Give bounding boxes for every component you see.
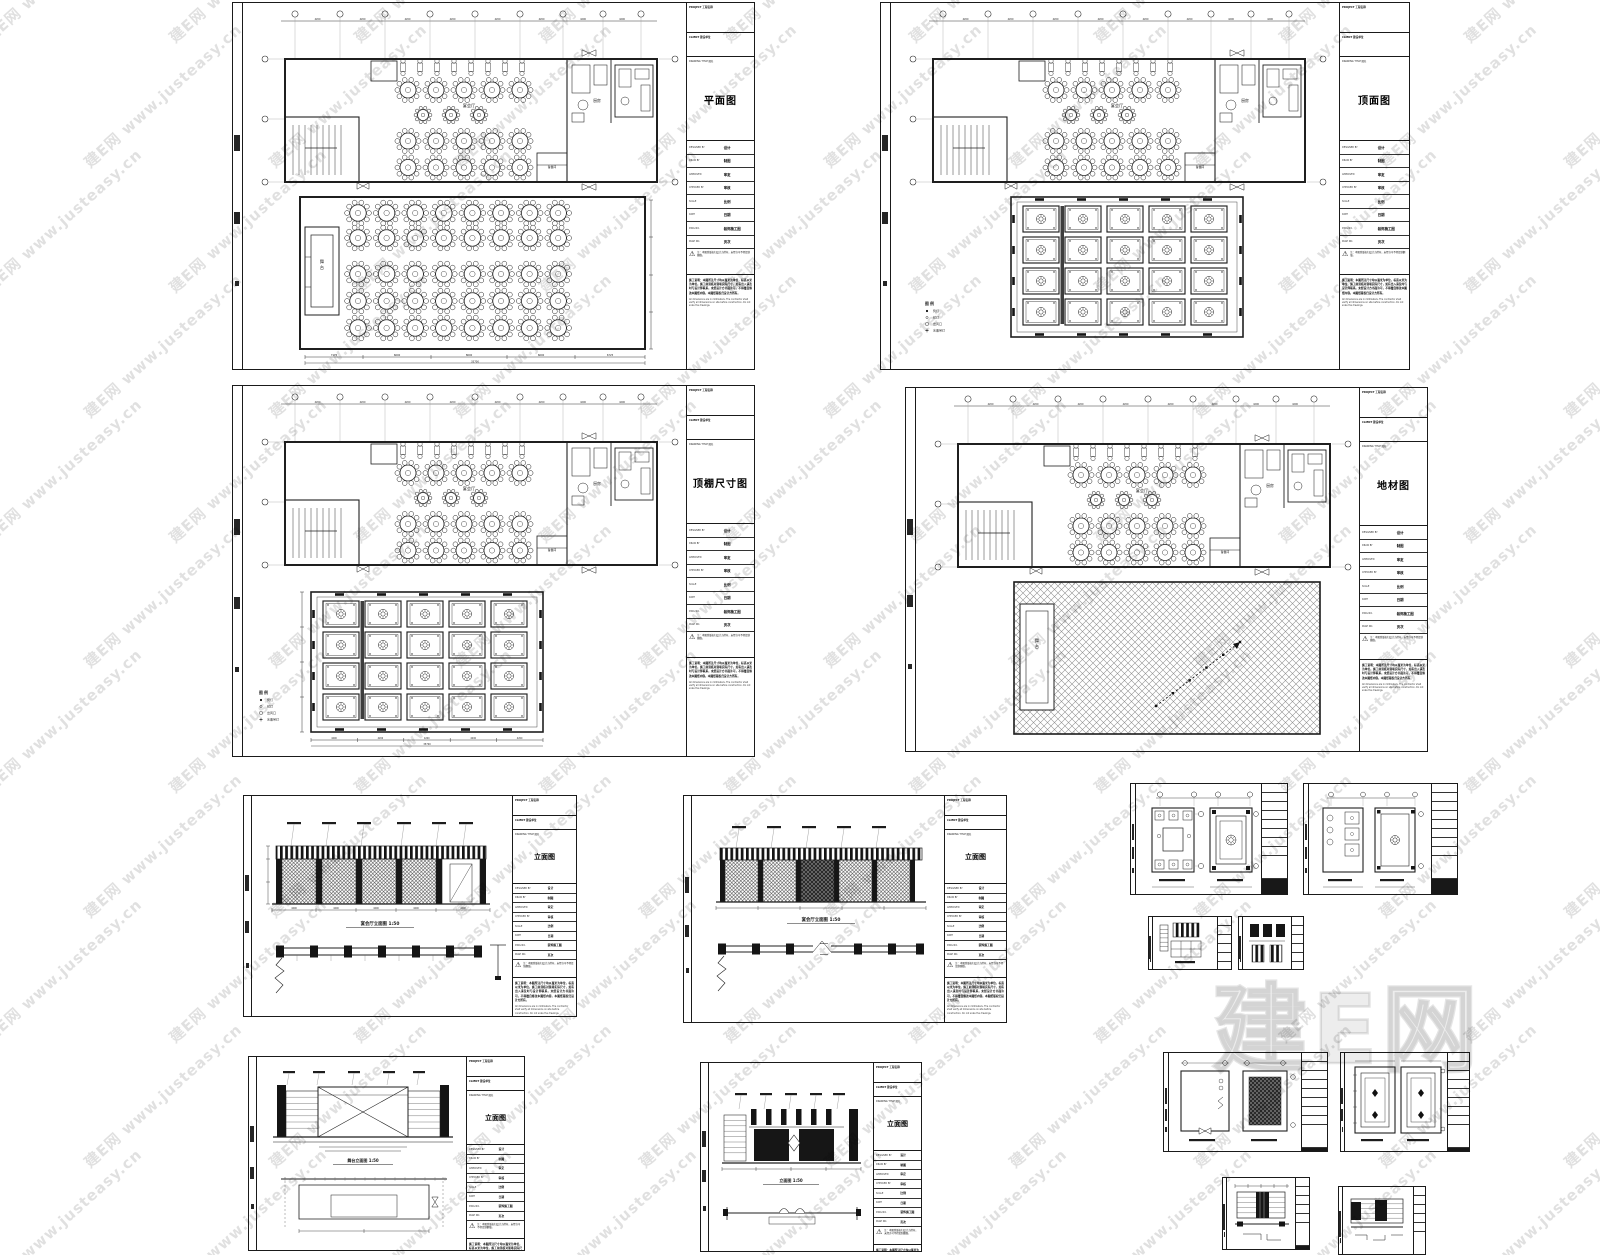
- svg-text:4200: 4200: [413, 907, 419, 910]
- titleblock-client: CLIENT 建设单位: [467, 1077, 524, 1091]
- titleblock-notes-block: [1262, 879, 1287, 894]
- titleblock-row: [1296, 1223, 1309, 1246]
- watermark-tile: 建E网 www.justeasy.cn: [1459, 644, 1600, 797]
- watermark-tile: 建E网 www.justeasy.cn: [0, 394, 146, 547]
- titleblock-field: DWG NO.装饰施工图: [945, 941, 1006, 951]
- sheet-floor-plan: 42004200420042004200420042004200宴会厅厨房备餐间…: [232, 2, 755, 370]
- svg-text:台: 台: [320, 264, 324, 271]
- titleblock-field: DATE日期: [513, 932, 576, 942]
- warning-triangle-icon: ⚠: [947, 962, 953, 969]
- title-block: PROJECT 工程名称CLIENT 建设单位DRAWING TITLE 图名立…: [944, 796, 1006, 1022]
- svg-text:4200: 4200: [424, 737, 430, 740]
- svg-text:4200: 4200: [1292, 403, 1298, 406]
- titleblock-row: [1292, 944, 1303, 953]
- svg-text:4200: 4200: [1098, 18, 1104, 21]
- titleblock-row: [1432, 793, 1457, 802]
- svg-text:4200: 4200: [315, 18, 321, 21]
- svg-text:4200: 4200: [495, 401, 501, 404]
- titleblock-field: DATE日期: [945, 932, 1006, 942]
- titleblock-field: DESIGNED BY设计: [513, 884, 576, 894]
- svg-text:35700: 35700: [423, 743, 431, 746]
- titleblock-row: [1414, 1232, 1425, 1254]
- titleblock-row: [1292, 926, 1303, 935]
- titleblock-row: [1302, 1098, 1327, 1107]
- sheet-title: 立面图: [467, 1113, 524, 1123]
- svg-text:4200: 4200: [963, 18, 969, 21]
- sheet-elevation-a: 42004200420042004200宴会厅立面图 1:50PROJECT 工…: [243, 795, 577, 1017]
- sheet-drawing-area: 舞台立面图 1:50: [257, 1057, 466, 1250]
- titleblock-warning: ⚠注：本图纸版权归设计方所有，未经许可不得复制翻版。: [513, 960, 576, 978]
- titleblock-field: DWG NO.装饰施工图: [513, 941, 576, 951]
- warning-triangle-icon: ⚠: [469, 1223, 475, 1230]
- sheet-binding-strip: [881, 3, 891, 369]
- svg-text:4200: 4200: [1143, 18, 1149, 21]
- sheet-f-drawing: 宴会厅立面图 1:50: [694, 798, 942, 1020]
- titleblock-fields: DESIGNED BY设计DRAW BY制图APPROVED审定CHECKED …: [874, 1151, 921, 1227]
- sheet-drawing-area: 42004200420042004200宴会厅立面图 1:50: [252, 796, 512, 1016]
- titleblock-row: [1302, 1080, 1327, 1089]
- titleblock-project: PROJECT 工程名称: [687, 386, 754, 416]
- svg-text:宴会厅: 宴会厅: [463, 485, 476, 492]
- watermark-tile: 建E网 www.justeasy.cn: [904, 1144, 1071, 1255]
- titleblock-client: CLIENT 建设单位: [513, 816, 576, 830]
- title-block: PROJECT 工程名称CLIENT 建设单位DRAWING TITLE 图名平…: [686, 3, 754, 369]
- titleblock-project: PROJECT 工程名称: [467, 1057, 524, 1077]
- titleblock-project: PROJECT 工程名称: [1340, 3, 1409, 33]
- sheet-detail-washroom-1: [1130, 783, 1288, 895]
- titleblock-field: APPROVED审定: [1340, 168, 1409, 182]
- sheet-binding-strip: [233, 3, 243, 369]
- titleblock-warning: ⚠注：本图纸版权归设计方所有，未经许可不得复制翻版。: [1340, 249, 1409, 275]
- titleblock-field: APPROVED审定: [874, 1170, 921, 1180]
- svg-text:射灯: 射灯: [267, 704, 273, 709]
- svg-text:6600: 6600: [538, 353, 545, 357]
- titleblock-field: DRAW BY制图: [945, 894, 1006, 904]
- sheet-detail-washroom-2: [1303, 783, 1458, 895]
- titleblock-field: APPROVED审定: [945, 903, 1006, 913]
- titleblock-project: PROJECT 工程名称: [687, 3, 754, 33]
- title-block: PROJECT 工程名称CLIENT 建设单位DRAWING TITLE 图名顶…: [1339, 3, 1409, 369]
- sheet-detail-entry-2: [1340, 1052, 1470, 1152]
- titleblock-row: [1448, 1107, 1469, 1116]
- titleblock-row: [1218, 944, 1231, 953]
- svg-text:台: 台: [1035, 643, 1039, 650]
- titleblock-notes: 施工说明：本图所注尺寸均以毫米为单位，标高以米为单位。施工前须核对现场实际尺寸，…: [687, 275, 754, 369]
- sheet-drawing-area: [1136, 784, 1261, 894]
- watermark-tile: 建E网 www.justeasy.cn: [1559, 519, 1600, 672]
- sheet-m-drawing: [1229, 1180, 1293, 1247]
- svg-text:4200: 4200: [580, 401, 586, 404]
- titleblock-field: CHECKED BY审核: [1360, 567, 1427, 581]
- titleblock-project: PROJECT 工程名称: [513, 796, 576, 816]
- sheet-drawing-area: 42004200420042004200420042004200宴会厅厨房备餐间…: [243, 386, 686, 756]
- sheet-detail-4: [1338, 1186, 1426, 1255]
- svg-text:4200: 4200: [619, 401, 625, 404]
- sheet-elevation-stage: 舞台立面图 1:50PROJECT 工程名称CLIENT 建设单位DRAWING…: [248, 1056, 525, 1251]
- svg-text:4200: 4200: [333, 907, 339, 910]
- titleblock-warning: ⚠注：本图纸版权归设计方所有，未经许可不得复制翻版。: [687, 249, 754, 275]
- watermark-tile: 建E网 www.justeasy.cn: [79, 269, 246, 422]
- titleblock-warning: ⚠注：本图纸版权归设计方所有，未经许可不得复制翻版。: [1360, 634, 1427, 660]
- titleblock-title: DRAWING TITLE 图名顶棚尺寸图: [687, 440, 754, 524]
- titleblock-field: PAGE NO.页次: [513, 951, 576, 961]
- svg-text:舞: 舞: [1035, 637, 1039, 644]
- watermark-tile: 建E网 www.justeasy.cn: [0, 144, 146, 297]
- svg-text:备餐间: 备餐间: [548, 165, 557, 169]
- sheet-i-drawing: [1155, 919, 1215, 967]
- titleblock-project: PROJECT 工程名称: [945, 796, 1006, 816]
- sheet-title: 立面图: [513, 852, 576, 862]
- svg-text:4200: 4200: [291, 907, 297, 910]
- svg-text:4200: 4200: [539, 18, 545, 21]
- svg-text:4200: 4200: [378, 737, 384, 740]
- svg-text:水晶吊灯: 水晶吊灯: [933, 328, 945, 333]
- sheet-a-drawing: 42004200420042004200420042004200宴会厅厨房备餐间…: [245, 5, 684, 367]
- titleblock-field: DWG NO.装饰施工图: [687, 605, 754, 619]
- titleblock-fields: DESIGNED BY设计DRAW BY制图APPROVED审定CHECKED …: [467, 1145, 524, 1221]
- sheet-title: 地材图: [1360, 477, 1427, 492]
- titleblock-row: [1296, 1178, 1309, 1187]
- svg-text:4200: 4200: [1168, 403, 1174, 406]
- svg-text:宴会厅: 宴会厅: [1111, 102, 1124, 109]
- titleblock-row: [1218, 917, 1231, 926]
- titleblock-notes-block: [1302, 1148, 1327, 1151]
- title-block: [1431, 784, 1457, 894]
- titleblock-client: CLIENT 建设单位: [1340, 33, 1409, 57]
- svg-text:筒灯: 筒灯: [267, 697, 273, 702]
- titleblock-field: DRAW BY制图: [1340, 155, 1409, 169]
- titleblock-row: [1262, 856, 1287, 879]
- svg-text:4200: 4200: [1078, 403, 1084, 406]
- svg-text:4200: 4200: [470, 737, 476, 740]
- titleblock-field: DATE日期: [1340, 209, 1409, 223]
- svg-text:4200: 4200: [450, 401, 456, 404]
- titleblock-row: [1218, 926, 1231, 935]
- svg-text:4200: 4200: [1228, 18, 1234, 21]
- title-block: PROJECT 工程名称CLIENT 建设单位DRAWING TITLE 图名立…: [466, 1057, 524, 1250]
- titleblock-row: [1262, 820, 1287, 829]
- sheet-binding-strip: [906, 388, 916, 751]
- sheet-drawing-area: [1153, 917, 1217, 969]
- warning-triangle-icon: ⚠: [1342, 251, 1348, 258]
- sheet-detail-2: [1238, 916, 1304, 970]
- titleblock-field: APPROVED审定: [687, 551, 754, 565]
- titleblock-row: [1296, 1214, 1309, 1223]
- svg-text:4200: 4200: [405, 18, 411, 21]
- svg-text:水晶吊灯: 水晶吊灯: [267, 717, 279, 722]
- titleblock-notes: 施工说明：本图所注尺寸均以毫米为单位，标高以米为单位。施工前须核对现场实际尺寸，…: [687, 658, 754, 756]
- svg-text:4200: 4200: [1053, 18, 1059, 21]
- title-block: [1217, 917, 1231, 969]
- warning-triangle-icon: ⚠: [1362, 636, 1368, 643]
- svg-text:出风口: 出风口: [933, 321, 942, 326]
- titleblock-field: DESIGNED BY设计: [945, 884, 1006, 894]
- watermark-tile: 建E网 www.justeasy.cn: [0, 644, 146, 797]
- titleblock-notes: 施工说明：本图所注尺寸均以毫米为单位，标高以米为单位。施工前须核对现场实际尺寸，…: [874, 1245, 921, 1251]
- sheet-elevation-c: 立面图 1:50PROJECT 工程名称CLIENT 建设单位DRAWING T…: [700, 1062, 922, 1252]
- titleblock-notes: 施工说明：本图所注尺寸均以毫米为单位，标高以米为单位。施工前须核对现场实际尺寸，…: [1340, 275, 1409, 369]
- titleblock-field: DESIGNED BY设计: [467, 1145, 524, 1155]
- title-block: [1261, 784, 1287, 894]
- svg-text:4200: 4200: [1212, 403, 1218, 406]
- titleblock-field: APPROVED审定: [687, 168, 754, 182]
- sheet-binding-strip: [233, 386, 243, 756]
- titleblock-row: [1432, 802, 1457, 811]
- titleblock-title: DRAWING TITLE 图名立面图: [874, 1097, 921, 1151]
- title-block: [1295, 1178, 1309, 1249]
- titleblock-field: DWG NO.装饰施工图: [1360, 607, 1427, 621]
- titleblock-title: DRAWING TITLE 图名顶面图: [1340, 57, 1409, 141]
- titleblock-notes: 施工说明：本图所注尺寸均以毫米为单位，标高以米为单位。施工前须核对现场实际尺寸，…: [1360, 660, 1427, 751]
- titleblock-project: PROJECT 工程名称: [874, 1063, 921, 1083]
- titleblock-row: [1302, 1053, 1327, 1062]
- titleblock-warning: ⚠注：本图纸版权归设计方所有，未经许可不得复制翻版。: [687, 632, 754, 658]
- watermark-tile: 建E网 www.justeasy.cn: [1459, 1144, 1600, 1255]
- sheet-detail-1: [1148, 916, 1232, 970]
- sheet-l-drawing: [1347, 1055, 1445, 1149]
- titleblock-row: [1432, 811, 1457, 820]
- sheet-binding-strip: [684, 796, 692, 1022]
- titleblock-row: [1448, 1125, 1469, 1148]
- titleblock-row: [1262, 793, 1287, 802]
- watermark-tile: 建E网 www.justeasy.cn: [1459, 394, 1600, 547]
- title-block: [1413, 1187, 1425, 1254]
- svg-text:4200: 4200: [373, 907, 379, 910]
- svg-text:4200: 4200: [1008, 18, 1014, 21]
- svg-text:4200: 4200: [517, 737, 523, 740]
- titleblock-warning: ⚠注：本图纸版权归设计方所有，未经许可不得复制翻版。: [874, 1227, 921, 1245]
- titleblock-field: DRAW BY制图: [687, 538, 754, 552]
- titleblock-field: DESIGNED BY设计: [687, 141, 754, 155]
- title-block: [1291, 917, 1303, 969]
- sheet-k-drawing: [1171, 1055, 1299, 1149]
- sheet-drawing-area: [1343, 1187, 1413, 1254]
- titleblock-row: [1414, 1223, 1425, 1232]
- svg-text:舞台立面图 1:50: 舞台立面图 1:50: [347, 1157, 379, 1163]
- titleblock-row: [1432, 829, 1457, 838]
- titleblock-field: DESIGNED BY设计: [1360, 526, 1427, 540]
- titleblock-row: [1414, 1205, 1425, 1214]
- svg-text:4200: 4200: [315, 401, 321, 404]
- titleblock-row: [1448, 1089, 1469, 1098]
- titleblock-row: [1296, 1196, 1309, 1205]
- sheet-ceiling-plan: 42004200420042004200420042004200宴会厅厨房备餐间…: [880, 2, 1410, 370]
- titleblock-row: [1218, 935, 1231, 944]
- sheet-drawing-area: 42004200420042004200420042004200宴会厅厨房备餐间…: [243, 3, 686, 369]
- warning-triangle-icon: ⚠: [689, 634, 695, 641]
- titleblock-field: CHECKED BY审核: [1340, 182, 1409, 196]
- titleblock-project: PROJECT 工程名称: [1360, 388, 1427, 418]
- title-block: PROJECT 工程名称CLIENT 建设单位DRAWING TITLE 图名立…: [873, 1063, 921, 1251]
- sheet-detail-entry-1: [1163, 1052, 1328, 1152]
- svg-text:图 例: 图 例: [259, 690, 268, 695]
- titleblock-field: SCALE比例: [467, 1183, 524, 1193]
- sheet-title: 立面图: [945, 852, 1006, 862]
- titleblock-fields: DESIGNED BY设计DRAW BY制图APPROVED审定CHECKED …: [687, 524, 754, 632]
- warning-triangle-icon: ⚠: [876, 1229, 882, 1236]
- warning-triangle-icon: ⚠: [689, 251, 695, 258]
- titleblock-field: CHECKED BY审核: [687, 565, 754, 579]
- titleblock-title: DRAWING TITLE 图名立面图: [467, 1091, 524, 1145]
- titleblock-field: DRAW BY制图: [1360, 540, 1427, 554]
- titleblock-title: DRAWING TITLE 图名立面图: [513, 830, 576, 884]
- svg-text:4200: 4200: [360, 18, 366, 21]
- sheet-drawing-area: 42004200420042004200420042004200宴会厅厨房备餐间…: [916, 388, 1359, 751]
- titleblock-field: SCALE比例: [874, 1189, 921, 1199]
- sheet-p-drawing: 立面图 1:50: [711, 1065, 871, 1249]
- sheet-j-drawing: [1245, 919, 1289, 967]
- sheet-binding-strip: [701, 1063, 709, 1251]
- svg-text:4200: 4200: [1253, 403, 1259, 406]
- title-block: PROJECT 工程名称CLIENT 建设单位DRAWING TITLE 图名顶…: [686, 386, 754, 756]
- titleblock-notes-block: [1448, 1148, 1469, 1151]
- titleblock-field: SCALE比例: [687, 578, 754, 592]
- sheet-title: 平面图: [687, 92, 754, 107]
- svg-text:7175: 7175: [331, 353, 338, 357]
- sheet-drawing-area: [1243, 917, 1291, 969]
- watermark-tile: 建E网 www.justeasy.cn: [1459, 144, 1600, 297]
- titleblock-field: PAGE NO.页次: [945, 951, 1006, 961]
- watermark-tile: 建E网 www.justeasy.cn: [79, 1019, 246, 1172]
- svg-text:4200: 4200: [495, 18, 501, 21]
- titleblock-field: DWG NO.装饰施工图: [687, 222, 754, 236]
- titleblock-field: DWG NO.装饰施工图: [1340, 222, 1409, 236]
- svg-text:立面图 1:50: 立面图 1:50: [779, 1177, 803, 1183]
- sheet-n-drawing: [1345, 1189, 1411, 1252]
- titleblock-row: [1414, 1214, 1425, 1223]
- titleblock-field: PAGE NO.页次: [687, 236, 754, 250]
- titleblock-field: DATE日期: [687, 592, 754, 606]
- watermark-tile: 建E网 www.justeasy.cn: [1559, 269, 1600, 422]
- titleblock-field: DWG NO.装饰施工图: [874, 1208, 921, 1218]
- titleblock-field: CHECKED BY审核: [945, 913, 1006, 923]
- titleblock-notes-block: [1432, 879, 1457, 894]
- titleblock-row: [1448, 1071, 1469, 1080]
- sheet-elevation-b: 宴会厅立面图 1:50PROJECT 工程名称CLIENT 建设单位DRAWIN…: [683, 795, 1007, 1023]
- svg-text:6600: 6600: [394, 353, 401, 357]
- cad-sheet-collection: 建E网 www.justeasy.cn建E网 www.justeasy.cn建E…: [0, 0, 1600, 1255]
- titleblock-field: PAGE NO.页次: [1340, 236, 1409, 250]
- svg-text:备餐间: 备餐间: [1196, 165, 1205, 169]
- watermark-tile: 建E网 www.justeasy.cn: [0, 1144, 146, 1255]
- svg-text:6725: 6725: [607, 353, 614, 357]
- svg-text:4200: 4200: [988, 403, 994, 406]
- titleblock-row: [1448, 1062, 1469, 1071]
- titleblock-field: CHECKED BY审核: [513, 913, 576, 923]
- titleblock-row: [1262, 802, 1287, 811]
- titleblock-notes: 施工说明：本图所注尺寸均以毫米为单位，标高以米为单位。施工前须核对现场实际尺寸，…: [513, 978, 576, 1016]
- titleblock-field: SCALE比例: [945, 922, 1006, 932]
- sheet-title: 立面图: [874, 1119, 921, 1129]
- titleblock-row: [1292, 953, 1303, 962]
- titleblock-field: DWG NO.装饰施工图: [467, 1202, 524, 1212]
- watermark-tile: 建E网 www.justeasy.cn: [534, 1144, 701, 1255]
- titleblock-row: [1296, 1205, 1309, 1214]
- svg-text:4200: 4200: [1187, 18, 1193, 21]
- svg-text:筒灯: 筒灯: [933, 308, 939, 313]
- titleblock-client: CLIENT 建设单位: [687, 416, 754, 440]
- sheet-drawing-area: 立面图 1:50: [709, 1063, 873, 1251]
- titleblock-client: CLIENT 建设单位: [687, 33, 754, 57]
- svg-text:备餐间: 备餐间: [1221, 550, 1230, 554]
- sheet-c-drawing: 42004200420042004200420042004200宴会厅厨房备餐间…: [245, 388, 684, 754]
- svg-text:4200: 4200: [405, 401, 411, 404]
- titleblock-row: [1432, 784, 1457, 793]
- titleblock-title: DRAWING TITLE 图名地材图: [1360, 442, 1427, 526]
- svg-text:4200: 4200: [539, 401, 545, 404]
- svg-text:射灯: 射灯: [933, 315, 939, 320]
- sheet-drawing-area: [1227, 1178, 1295, 1249]
- titleblock-field: CHECKED BY审核: [874, 1180, 921, 1190]
- titleblock-title: DRAWING TITLE 图名平面图: [687, 57, 754, 141]
- titleblock-fields: DESIGNED BY设计DRAW BY制图APPROVED审定CHECKED …: [1340, 141, 1409, 249]
- sheet-floor-material-plan: 42004200420042004200420042004200宴会厅厨房备餐间…: [905, 387, 1428, 752]
- svg-text:宴会厅: 宴会厅: [463, 102, 476, 109]
- titleblock-field: SCALE比例: [1360, 580, 1427, 594]
- watermark-tile: 建E网 www.justeasy.cn: [79, 519, 246, 672]
- titleblock-notes: 施工说明：本图所注尺寸均以毫米为单位，标高以米为单位。施工前须核对现场实际尺寸，…: [945, 978, 1006, 1022]
- watermark-tile: 建E网 www.justeasy.cn: [1559, 769, 1600, 922]
- titleblock-field: SCALE比例: [1340, 195, 1409, 209]
- sheet-drawing-area: [1169, 1053, 1301, 1151]
- svg-text:舞: 舞: [320, 258, 324, 265]
- titleblock-field: PAGE NO.页次: [874, 1218, 921, 1228]
- titleblock-row: [1302, 1062, 1327, 1071]
- titleblock-row: [1262, 811, 1287, 820]
- titleblock-client: CLIENT 建设单位: [874, 1083, 921, 1097]
- titleblock-row: [1292, 917, 1303, 926]
- titleblock-row: [1432, 847, 1457, 856]
- titleblock-field: DATE日期: [467, 1193, 524, 1203]
- titleblock-field: DESIGNED BY设计: [1340, 141, 1409, 155]
- titleblock-fields: DESIGNED BY设计DRAW BY制图APPROVED审定CHECKED …: [513, 884, 576, 960]
- svg-text:宴会厅: 宴会厅: [1136, 487, 1149, 494]
- sheet-e-drawing: 42004200420042004200宴会厅立面图 1:50: [254, 798, 510, 1014]
- svg-text:4200: 4200: [331, 737, 337, 740]
- titleblock-row: [1432, 838, 1457, 847]
- titleblock-fields: DESIGNED BY设计DRAW BY制图APPROVED审定CHECKED …: [687, 141, 754, 249]
- sheet-o-drawing: 舞台立面图 1:50: [259, 1059, 464, 1248]
- titleblock-field: CHECKED BY审核: [467, 1174, 524, 1184]
- titleblock-fields: DESIGNED BY设计DRAW BY制图APPROVED审定CHECKED …: [1360, 526, 1427, 634]
- titleblock-client: CLIENT 建设单位: [1360, 418, 1427, 442]
- svg-text:宴会厅立面图 1:50: 宴会厅立面图 1:50: [361, 920, 400, 927]
- titleblock-field: DRAW BY制图: [687, 155, 754, 169]
- titleblock-fields: DESIGNED BY设计DRAW BY制图APPROVED审定CHECKED …: [945, 884, 1006, 960]
- titleblock-row: [1262, 838, 1287, 847]
- svg-text:4200: 4200: [619, 18, 625, 21]
- titleblock-notes-block: [1296, 1246, 1309, 1249]
- svg-text:8600: 8600: [466, 353, 473, 357]
- watermark-tile: 建E网 www.justeasy.cn: [0, 0, 146, 47]
- svg-text:备餐间: 备餐间: [548, 548, 557, 552]
- titleblock-row: [1302, 1116, 1327, 1125]
- sheet-drawing-area: 宴会厅立面图 1:50: [692, 796, 944, 1022]
- titleblock-row: [1292, 935, 1303, 944]
- titleblock-field: DESIGNED BY设计: [874, 1151, 921, 1161]
- svg-text:4200: 4200: [460, 907, 466, 910]
- titleblock-warning: ⚠注：本图纸版权归设计方所有，未经许可不得复制翻版。: [945, 960, 1006, 978]
- svg-text:厨房: 厨房: [593, 481, 601, 486]
- sheet-drawing-area: [1345, 1053, 1447, 1151]
- titleblock-field: DATE日期: [1360, 594, 1427, 608]
- titleblock-field: APPROVED审定: [513, 903, 576, 913]
- svg-text:厨房: 厨房: [593, 98, 601, 103]
- titleblock-field: APPROVED审定: [467, 1164, 524, 1174]
- sheet-h-drawing: [1311, 786, 1429, 892]
- svg-text:4200: 4200: [1123, 403, 1129, 406]
- sheet-g-drawing: [1138, 786, 1259, 892]
